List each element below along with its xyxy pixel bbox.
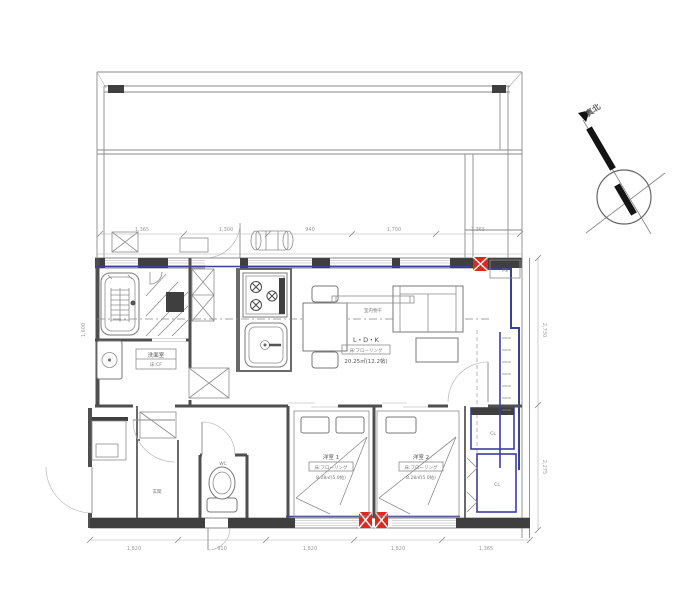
storage-column (500, 332, 511, 468)
wc: WC (207, 461, 237, 512)
bedroom2-spec: 床:フローリング (404, 464, 438, 471)
dim-bottom-3: 1,820 (303, 546, 317, 552)
ldk-spec: 床:フローリング (349, 347, 383, 354)
washroom: 洗面室 床:CF (97, 341, 176, 379)
bedroom1-name: 洋室 1 (323, 453, 339, 461)
drying-label: 室内物干 (364, 307, 382, 314)
dim-bottom-4: 1,820 (391, 546, 405, 552)
stove (243, 273, 287, 317)
wc-label: WC (219, 461, 227, 467)
bottom-dimension-row: 1,820 910 1,820 1,820 1,365 (87, 537, 533, 552)
dim-left-1: 1,600 (81, 323, 87, 337)
washroom-spec: 床:CF (150, 361, 162, 368)
ldk-area: 20.25㎡(12.2帖) (344, 357, 387, 365)
left-dimension: 1,600 (81, 323, 87, 337)
dining-set (303, 286, 347, 368)
bedroom1-area: 8.28㎡(5.0帖) (316, 474, 346, 481)
kitchen (239, 269, 291, 371)
bathroom (101, 273, 139, 335)
ldk: 室内物干 L・D・K 床:フローリング 20.25㎡(12.2帖) (97, 286, 492, 470)
coffee-table (416, 338, 458, 362)
dim-right-2: 2,275 (541, 460, 547, 474)
dim-top-2: 1,300 (219, 227, 233, 233)
wall-section-mark-left (108, 85, 124, 93)
toilet (207, 467, 237, 512)
unit-walls (90, 258, 530, 538)
marker-bottom-1 (359, 512, 372, 528)
bedroom2-label: 洋室 2 床:フローリング 8.28㎡(5.0帖) (399, 453, 443, 481)
ps-label: PS (502, 268, 508, 274)
north-needle-upper (589, 128, 613, 169)
closet-upper-label: CL (490, 431, 496, 437)
bathtub (101, 273, 139, 335)
stair-hatch-zone (146, 272, 188, 336)
closet-lower-label: CL (494, 482, 500, 488)
floor-plan-canvas: 1,365 1,300 940 1,700 1,365 (0, 0, 690, 600)
washroom-name: 洗面室 (148, 351, 165, 359)
bedroom2-name: 洋室 2 (413, 453, 429, 461)
right-dimension-column: 2,730 2,275 (535, 255, 547, 533)
bedroom1-label: 洋室 1 床:フローリング 8.28㎡(5.0帖) (309, 453, 353, 481)
floor-plan-drawing: 1,365 1,300 940 1,700 1,365 (0, 0, 690, 600)
dim-top-4: 1,700 (387, 227, 401, 233)
genkan-label: 玄関 (153, 488, 162, 495)
genkan: 玄関 (92, 412, 176, 495)
ldk-name: L・D・K (353, 336, 380, 344)
folding-door-marks (467, 458, 477, 512)
washroom-label: 洗面室 床:CF (136, 349, 176, 369)
bedroom1: 洋室 1 床:フローリング 8.28㎡(5.0帖) (294, 411, 369, 516)
bedroom2-area: 8.28㎡(5.0帖) (406, 474, 436, 481)
bedroom1-spec: 床:フローリング (314, 464, 348, 471)
dim-right-1: 2,730 (541, 323, 547, 337)
ac-outdoor-unit (112, 232, 208, 252)
kitchen-sink (245, 323, 287, 367)
marker-top-right (473, 257, 488, 271)
sofa (393, 286, 463, 332)
bedroom2: 洋室 2 床:フローリング 8.28㎡(5.0帖) (377, 411, 459, 516)
north-label: 真北 (583, 101, 602, 118)
north-needle-lower (617, 185, 634, 214)
dim-bottom-1: 1,820 (127, 546, 141, 552)
ldk-label: L・D・K 床:フローリング 20.25㎡(12.2帖) (342, 336, 390, 365)
dim-top-5: 1,365 (471, 227, 485, 233)
wall-section-mark-right (492, 85, 506, 93)
closets: CL CL (467, 408, 516, 512)
hall-storage (189, 269, 229, 398)
top-dimension-row: 1,365 1,300 940 1,700 1,365 (97, 227, 523, 237)
column-block (166, 292, 184, 312)
washing-machine (97, 341, 122, 379)
dim-top-3: 940 (305, 227, 315, 233)
dim-bottom-5: 1,365 (479, 546, 493, 552)
dim-bottom-2: 910 (217, 546, 227, 552)
dim-top-1: 1,365 (135, 227, 149, 233)
north-arrow: 真北 (578, 101, 665, 234)
